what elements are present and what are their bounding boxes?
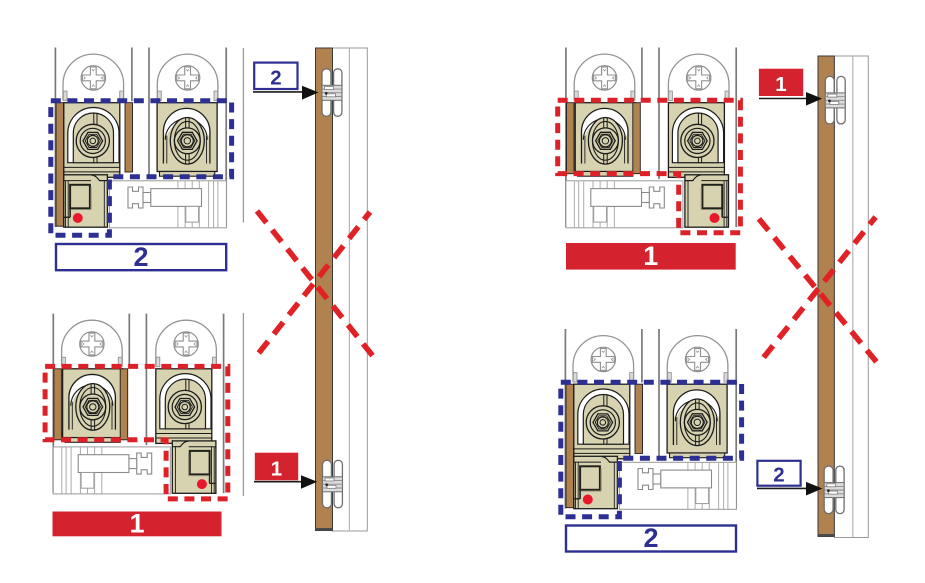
svg-text:1: 1 <box>643 241 658 271</box>
svg-text:2: 2 <box>773 464 784 487</box>
svg-text:1: 1 <box>271 457 282 480</box>
svg-text:1: 1 <box>775 73 786 96</box>
svg-text:1: 1 <box>129 508 144 538</box>
svg-text:2: 2 <box>270 66 281 89</box>
svg-text:2: 2 <box>133 242 148 272</box>
svg-text:2: 2 <box>643 523 658 553</box>
